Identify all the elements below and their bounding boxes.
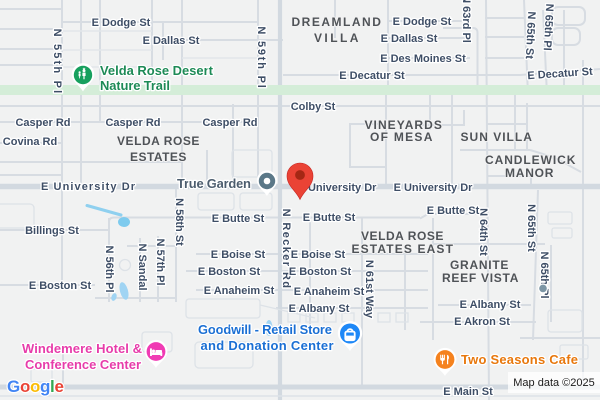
svg-text:e: e	[55, 377, 64, 396]
svg-text:N 57th Pl: N 57th Pl	[154, 238, 166, 285]
svg-text:E Butte St: E Butte St	[303, 212, 356, 224]
svg-text:E University Dr: E University Dr	[41, 181, 136, 193]
svg-text:True Garden: True Garden	[177, 176, 251, 191]
svg-text:Casper Rd: Casper Rd	[105, 117, 160, 129]
svg-text:N 59th Pl: N 59th Pl	[255, 26, 267, 89]
svg-text:N 65th Pl: N 65th Pl	[541, 3, 555, 51]
svg-text:E Main St: E Main St	[443, 386, 493, 398]
svg-text:Covina Rd: Covina Rd	[3, 136, 57, 148]
svg-text:N 58th St: N 58th St	[173, 198, 185, 246]
svg-text:ESTATES: ESTATES	[130, 150, 188, 164]
svg-text:E University Dr: E University Dr	[394, 182, 474, 194]
svg-text:E Anaheim St: E Anaheim St	[204, 285, 275, 297]
svg-text:Casper Rd: Casper Rd	[202, 117, 257, 129]
svg-text:VELDA ROSE: VELDA ROSE	[361, 229, 445, 243]
svg-text:N Sandal: N Sandal	[136, 243, 148, 290]
svg-text:Casper Rd: Casper Rd	[15, 117, 70, 129]
svg-text:E Dallas St: E Dallas St	[143, 35, 200, 47]
svg-text:N 61st Way: N 61st Way	[363, 260, 375, 319]
svg-text:N 63rd Pl: N 63rd Pl	[460, 0, 472, 43]
svg-text:E Albany St: E Albany St	[289, 303, 350, 315]
svg-text:E Butte St: E Butte St	[212, 213, 265, 225]
svg-text:DREAMLAND: DREAMLAND	[292, 15, 383, 29]
svg-text:E Boston St: E Boston St	[198, 266, 261, 278]
svg-text:E Boise St: E Boise St	[291, 249, 346, 261]
svg-text:g: g	[40, 377, 50, 396]
svg-text:REEF VISTA: REEF VISTA	[442, 271, 520, 285]
svg-text:Conference Center: Conference Center	[25, 357, 141, 372]
svg-text:Billings St: Billings St	[25, 225, 79, 237]
svg-text:CANDLEWICK: CANDLEWICK	[485, 153, 577, 167]
svg-text:E Boise St: E Boise St	[211, 249, 266, 261]
svg-text:Goodwill - Retail Store: Goodwill - Retail Store	[198, 322, 332, 337]
svg-text:Velda Rose Desert: Velda Rose Desert	[100, 63, 214, 78]
svg-text:N 56th Pl: N 56th Pl	[103, 245, 115, 292]
svg-text:E Dodge St: E Dodge St	[92, 17, 151, 29]
svg-text:ESTATES EAST: ESTATES EAST	[352, 242, 455, 256]
svg-text:E Decatur St: E Decatur St	[339, 70, 405, 82]
svg-text:GRANITE: GRANITE	[450, 258, 510, 272]
svg-text:N 65th St: N 65th St	[523, 11, 537, 60]
svg-text:G: G	[7, 377, 20, 396]
svg-text:OF MESA: OF MESA	[370, 130, 434, 144]
svg-text:N 55th Pl: N 55th Pl	[51, 29, 63, 96]
svg-text:E Dallas St: E Dallas St	[381, 33, 438, 45]
svg-text:MANOR: MANOR	[505, 166, 555, 180]
svg-text:E Boston St: E Boston St	[29, 280, 92, 292]
svg-text:Nature Trail: Nature Trail	[100, 78, 170, 93]
svg-text:E Des Moines St: E Des Moines St	[380, 53, 466, 65]
svg-text:o: o	[20, 377, 30, 396]
svg-text:VELDA ROSE: VELDA ROSE	[117, 134, 201, 148]
svg-text:Two Seasons Cafe: Two Seasons Cafe	[461, 352, 578, 367]
svg-text:o: o	[30, 377, 40, 396]
svg-text:VILLA: VILLA	[314, 31, 360, 45]
svg-text:E Butte St: E Butte St	[427, 205, 480, 217]
svg-text:N 65th St: N 65th St	[525, 204, 537, 252]
svg-text:SUN VILLA: SUN VILLA	[461, 130, 534, 144]
svg-text:E Anaheim St: E Anaheim St	[294, 286, 365, 298]
svg-text:and Donation Center: and Donation Center	[201, 338, 334, 353]
svg-text:E Dodge St: E Dodge St	[393, 16, 452, 28]
svg-text:Map data ©2025: Map data ©2025	[513, 377, 595, 389]
svg-text:E Albany St: E Albany St	[460, 299, 521, 311]
svg-text:Colby St: Colby St	[291, 101, 336, 113]
svg-text:E Akron St: E Akron St	[454, 316, 510, 328]
svg-text:Windemere Hotel &: Windemere Hotel &	[22, 341, 142, 356]
svg-text:E Boston St: E Boston St	[289, 266, 352, 278]
